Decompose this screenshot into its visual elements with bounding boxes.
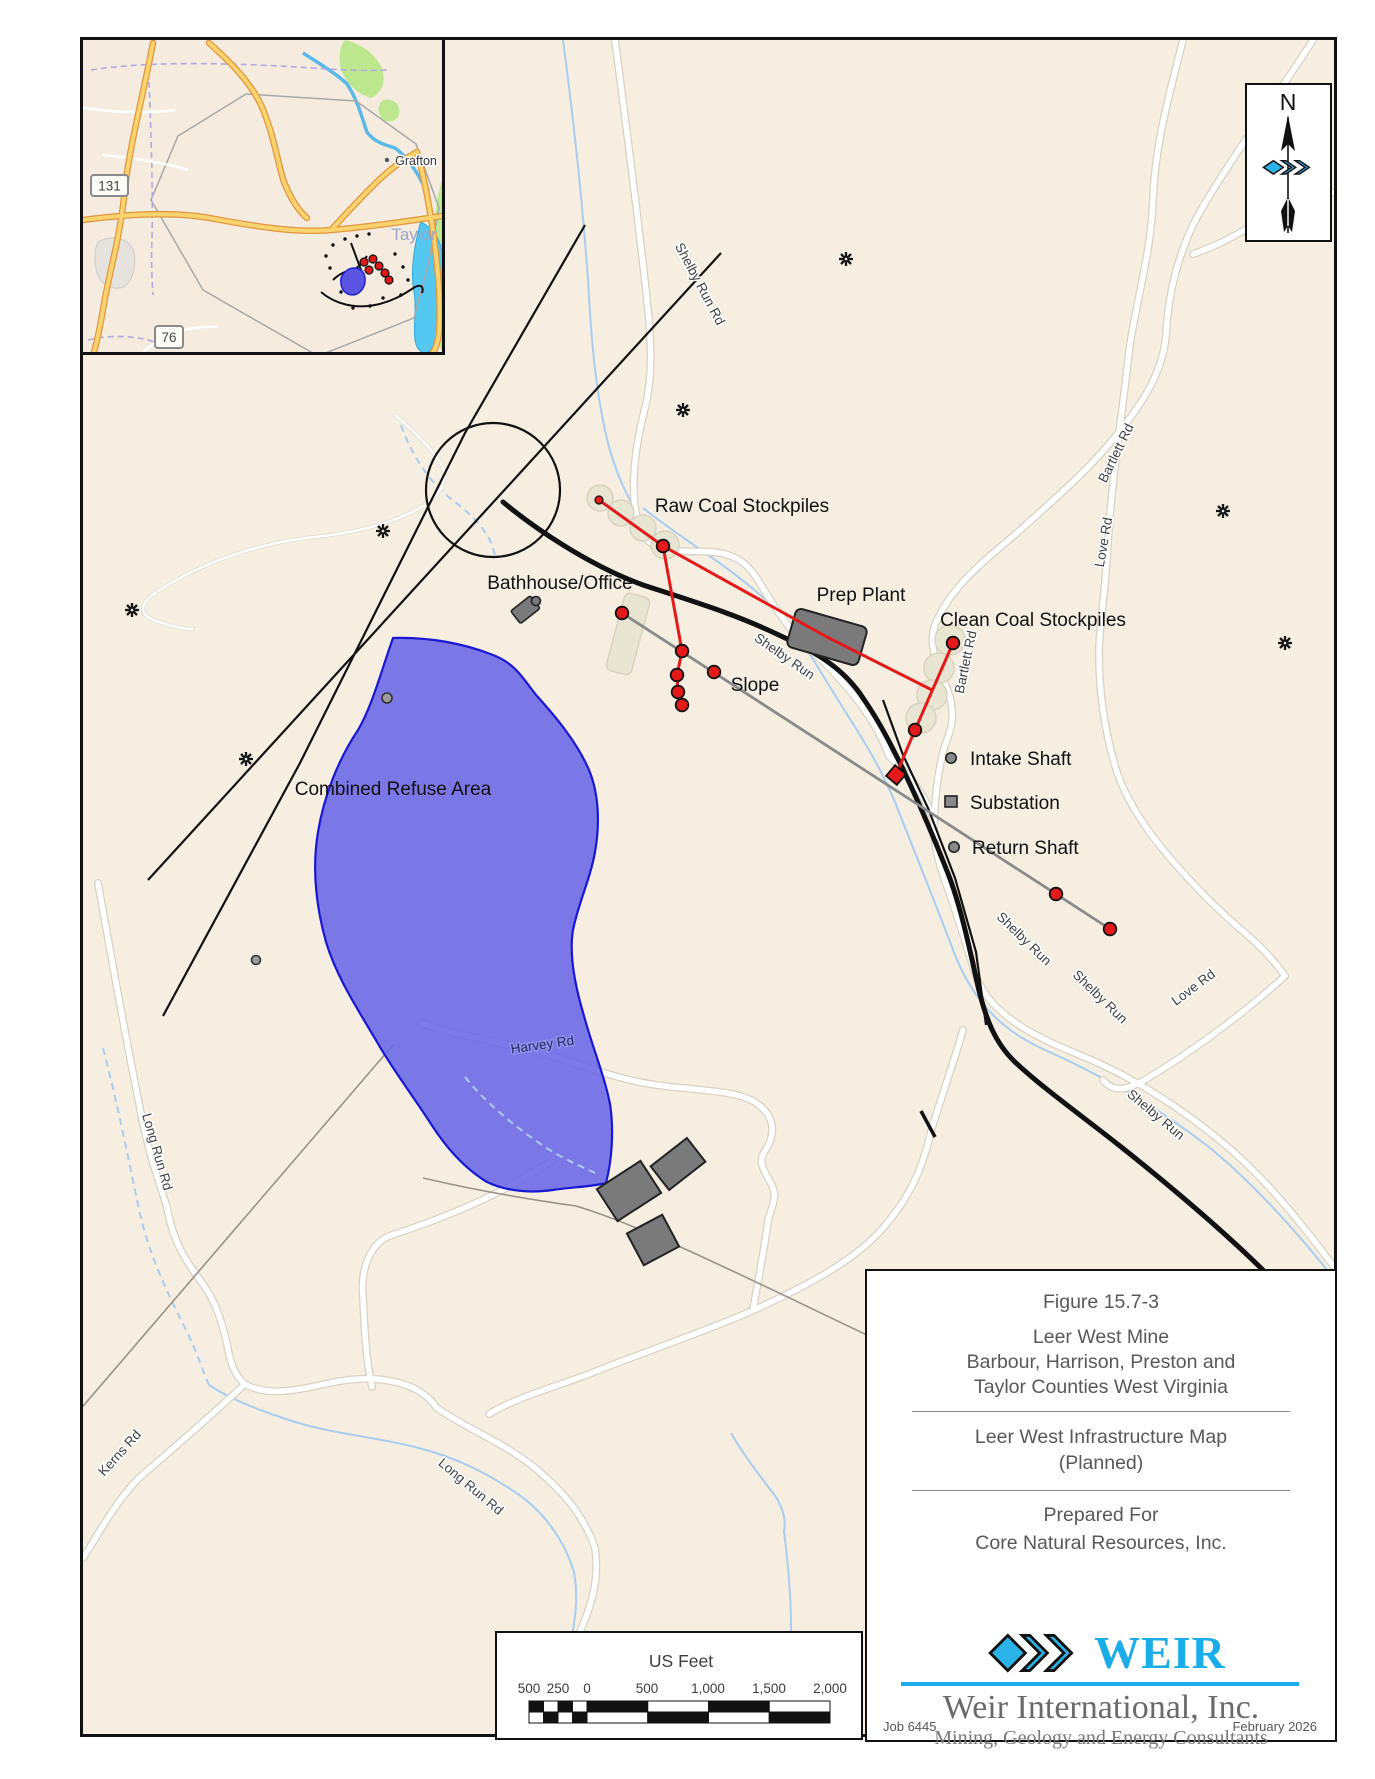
counties-line-2: Taylor Counties West Virginia: [867, 1376, 1335, 1399]
intake-shaft-marker: [946, 753, 956, 763]
scale-units-label: US Feet: [649, 1651, 713, 1671]
weir-logo-mark: [976, 1631, 1088, 1675]
figure-number: Figure 15.7-3: [867, 1291, 1335, 1314]
scale-bar-blocks: [529, 1701, 830, 1723]
map-title-line-1: Leer West Infrastructure Map: [867, 1426, 1335, 1449]
svg-text:250: 250: [547, 1681, 570, 1696]
prep-plant-label: Prep Plant: [817, 585, 906, 606]
map-title-line-2: (Planned): [867, 1452, 1335, 1475]
shelby-run-stream-label-2: Shelby Run: [994, 909, 1055, 968]
slope-and-conveyors: [595, 496, 1116, 935]
inset-dashed-boundaries: [88, 64, 388, 343]
svg-text:76: 76: [161, 330, 176, 345]
counties-line-1: Barbour, Harrison, Preston and: [867, 1351, 1335, 1374]
long-run-rd-lower-label: Long Run Rd: [436, 1455, 507, 1518]
grafton-town-dot: [385, 158, 389, 162]
taylor-county-label: Taylor: [391, 225, 437, 244]
inset-yellow-roads: [83, 43, 442, 352]
inset-refuse-blob: [341, 268, 365, 295]
love-rd-lower-label: Love Rd: [1169, 966, 1218, 1008]
bathhouse-tank: [532, 597, 541, 606]
substation-marker: [945, 796, 957, 807]
inset-canvas: 131 76 Grafton Taylor: [83, 40, 442, 352]
weir-diamond-icon: [990, 1635, 1025, 1670]
intake-shaft-label: Intake Shaft: [970, 749, 1072, 770]
svg-text:500: 500: [518, 1681, 541, 1696]
scale-bar: US Feet 500 250 0 500 1,000 1,500 2,000: [495, 1631, 863, 1740]
slope-label: Slope: [731, 675, 780, 696]
weir-chevron-icon: [1046, 1635, 1071, 1670]
weir-rule: [901, 1682, 1299, 1686]
scale-tick-labels: 500 250 0 500 1,000 1,500 2,000: [518, 1681, 847, 1696]
refuse-area-polygon: [315, 638, 612, 1192]
mine-name: Leer West Mine: [867, 1326, 1335, 1349]
bathhouse-label: Bathhouse/Office: [487, 573, 632, 594]
substation-label: Substation: [970, 793, 1060, 814]
north-arrow: N: [1245, 83, 1332, 242]
refuse-area-label: Combined Refuse Area: [295, 779, 492, 800]
inset-mine-lines: [321, 243, 423, 306]
title-block: Figure 15.7-3 Leer West Mine Barbour, Ha…: [865, 1269, 1337, 1742]
map-figure-page: Shelby Run Rd Bartlett Rd Bartlett Rd Lo…: [0, 0, 1375, 1779]
inset-map: 131 76 Grafton Taylor: [80, 37, 445, 355]
shelby-run-stream-label-3: Shelby Run: [1070, 967, 1131, 1026]
grafton-label: Grafton: [395, 154, 437, 168]
svg-text:500: 500: [636, 1681, 659, 1696]
raw-coal-label: Raw Coal Stockpiles: [655, 496, 829, 517]
divider: [912, 1490, 1290, 1491]
svg-text:1,000: 1,000: [691, 1681, 725, 1696]
svg-text:2,000: 2,000: [813, 1681, 847, 1696]
map-date: February 2026: [1232, 1719, 1317, 1734]
north-label: N: [1280, 89, 1297, 115]
weir-mark-small: [1263, 161, 1309, 174]
return-shaft-label: Return Shaft: [972, 838, 1079, 859]
svg-text:1,500: 1,500: [752, 1681, 786, 1696]
shaft-markers: [945, 753, 959, 852]
divider: [912, 1411, 1290, 1412]
clean-coal-label: Clean Coal Stockpiles: [940, 610, 1126, 631]
return-shaft-marker: [949, 842, 959, 852]
kerns-rd-label: Kerns Rd: [95, 1427, 144, 1479]
prepared-for: Prepared For: [867, 1504, 1335, 1527]
weir-logo: WEIR: [867, 1631, 1335, 1675]
svg-text:0: 0: [583, 1681, 591, 1696]
weir-wordmark: WEIR: [1094, 1631, 1226, 1675]
job-number: Job 6445: [883, 1719, 937, 1734]
client-name: Core Natural Resources, Inc.: [867, 1532, 1335, 1555]
route-shield-131: 131: [91, 175, 128, 196]
svg-text:131: 131: [98, 179, 121, 194]
route-shield-76: 76: [155, 326, 183, 348]
